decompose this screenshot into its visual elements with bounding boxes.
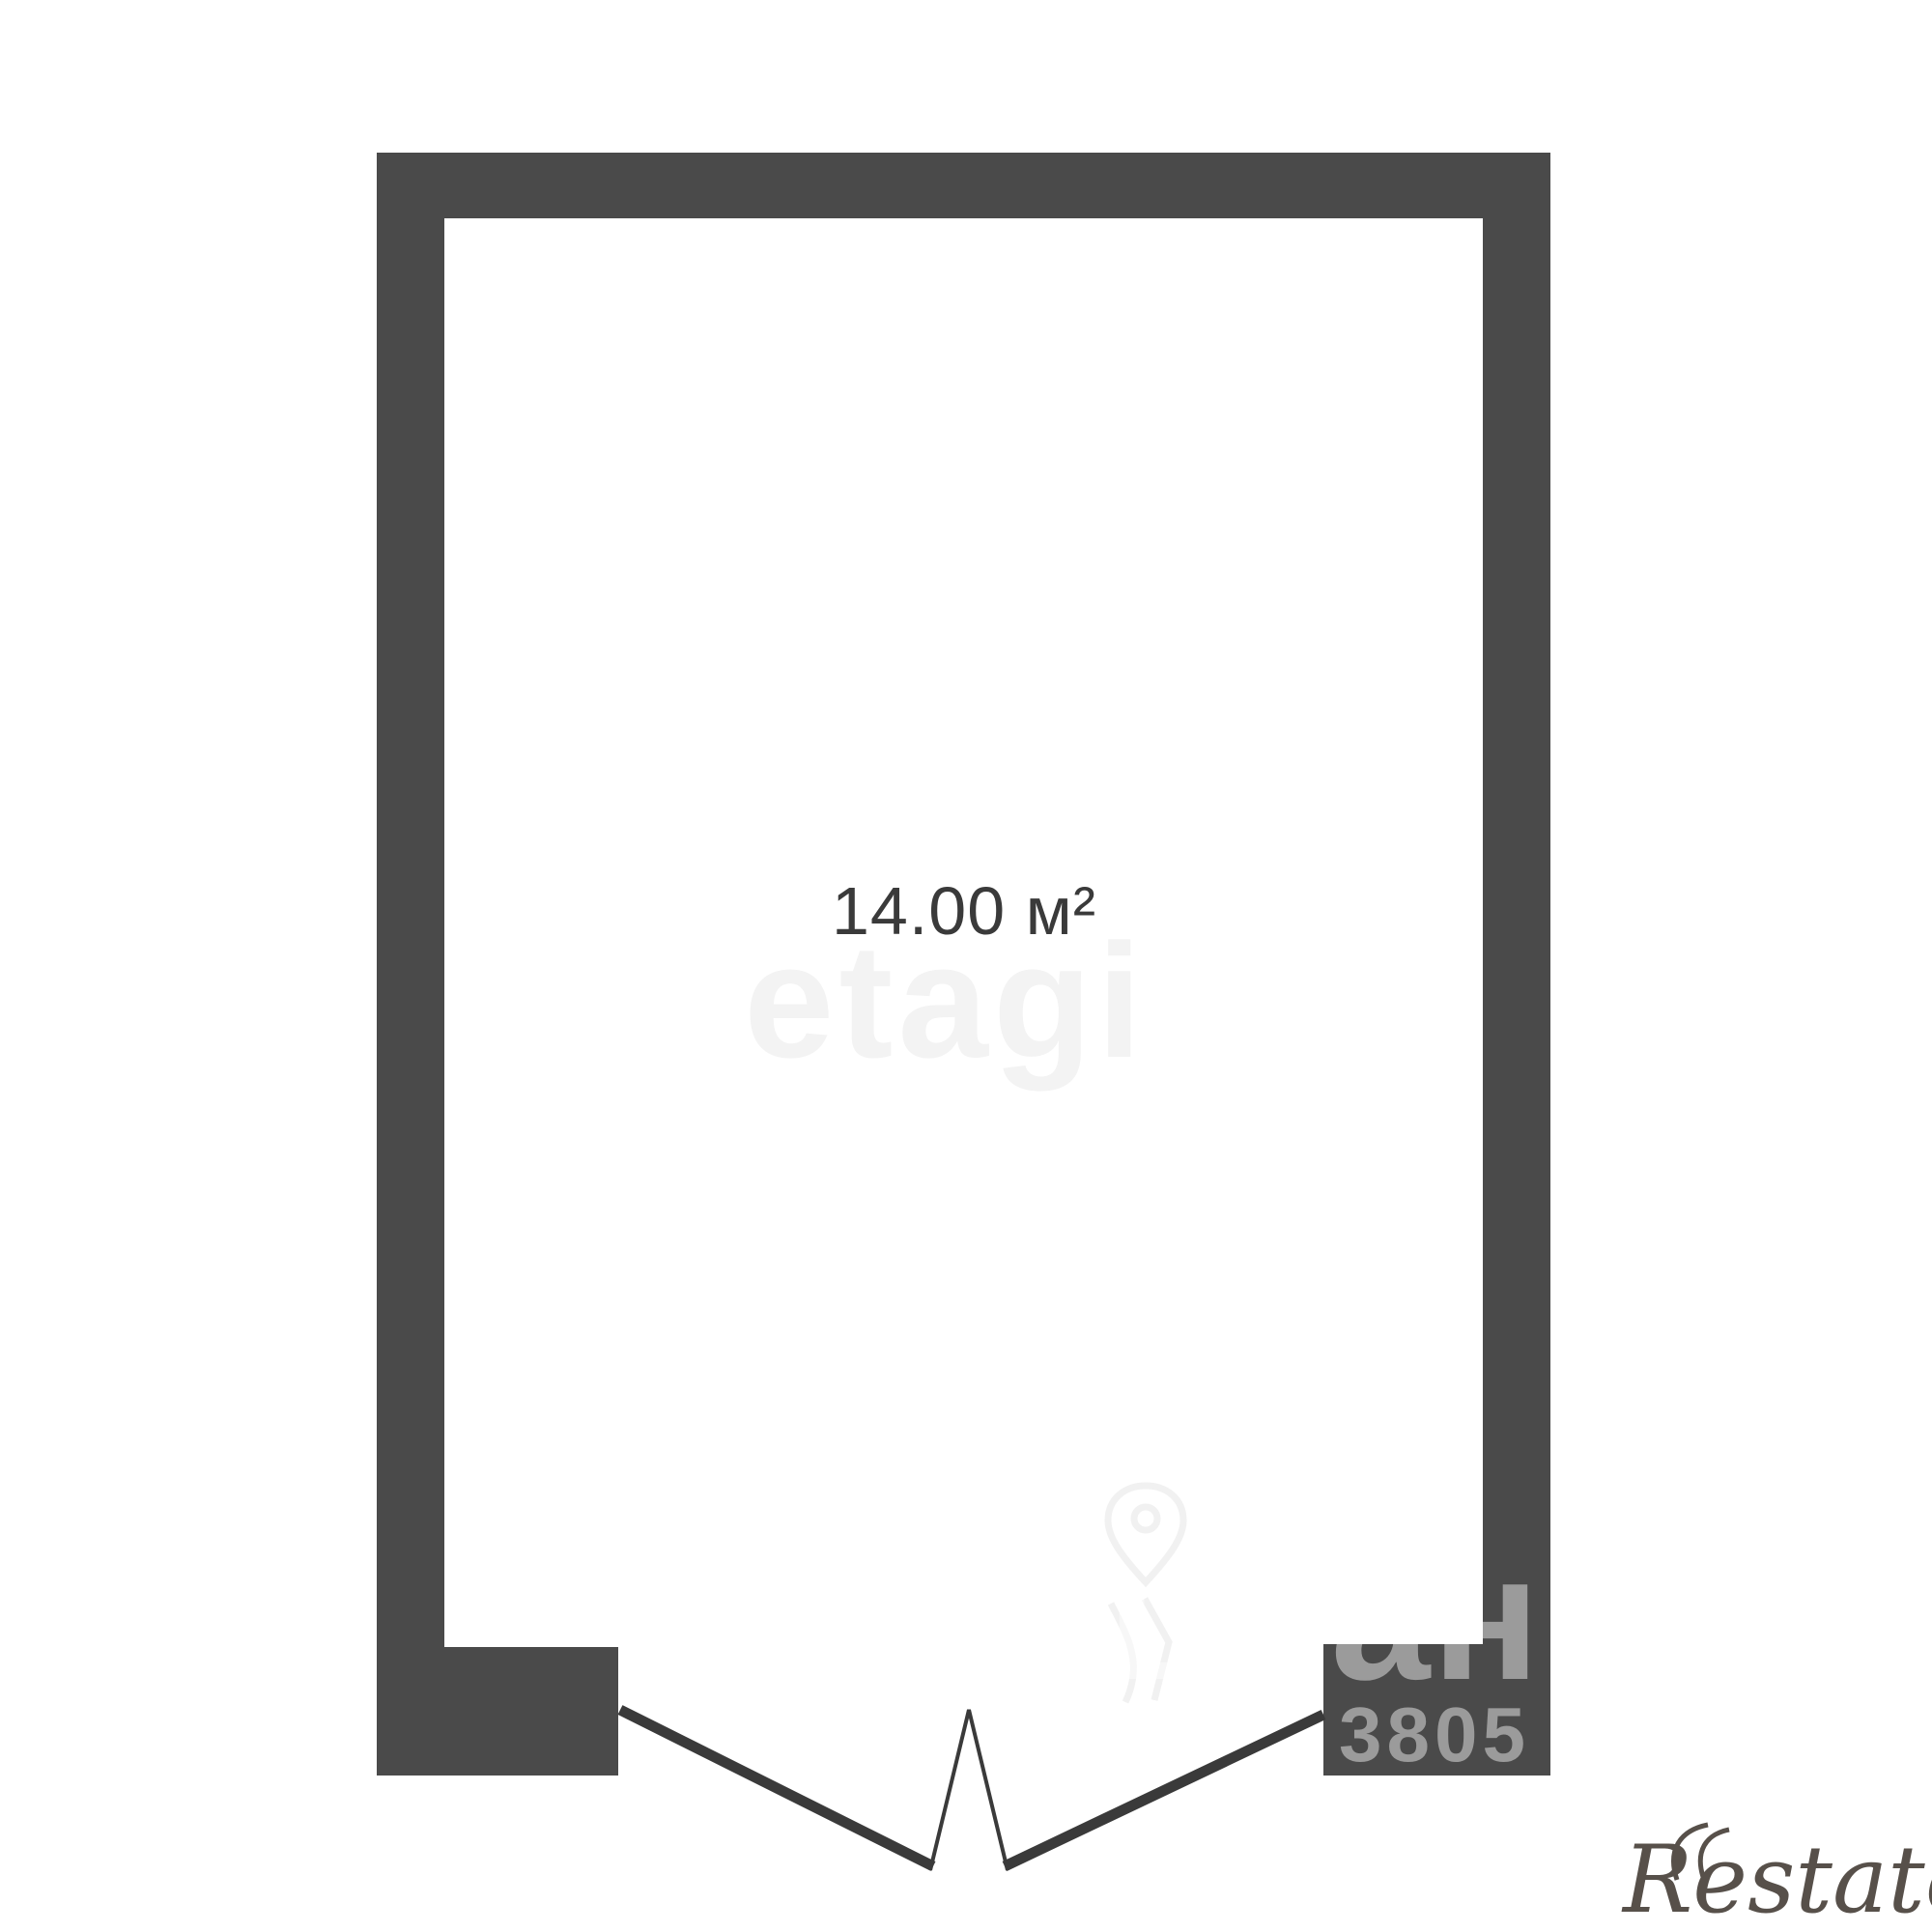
door-leaf-left: [620, 1710, 933, 1866]
door-center-spike: [930, 1710, 1008, 1870]
door-swing-lines: [620, 1710, 1323, 1870]
cian-id-watermark: 3805: [1339, 1696, 1530, 1774]
room-area-label: 14.00 м²: [674, 872, 1254, 950]
restate-logo: Restate: [1623, 1833, 1932, 1926]
floor-plan-canvas: 14.00 м² etagi циан 3805 Restate: [0, 0, 1932, 1932]
cian-watermark: циан: [1107, 1529, 1542, 1708]
wall-stub-bottom-left: [377, 1647, 618, 1776]
wall-left: [377, 153, 444, 1776]
door-leaf-right: [1005, 1715, 1323, 1866]
wall-top: [377, 153, 1550, 218]
